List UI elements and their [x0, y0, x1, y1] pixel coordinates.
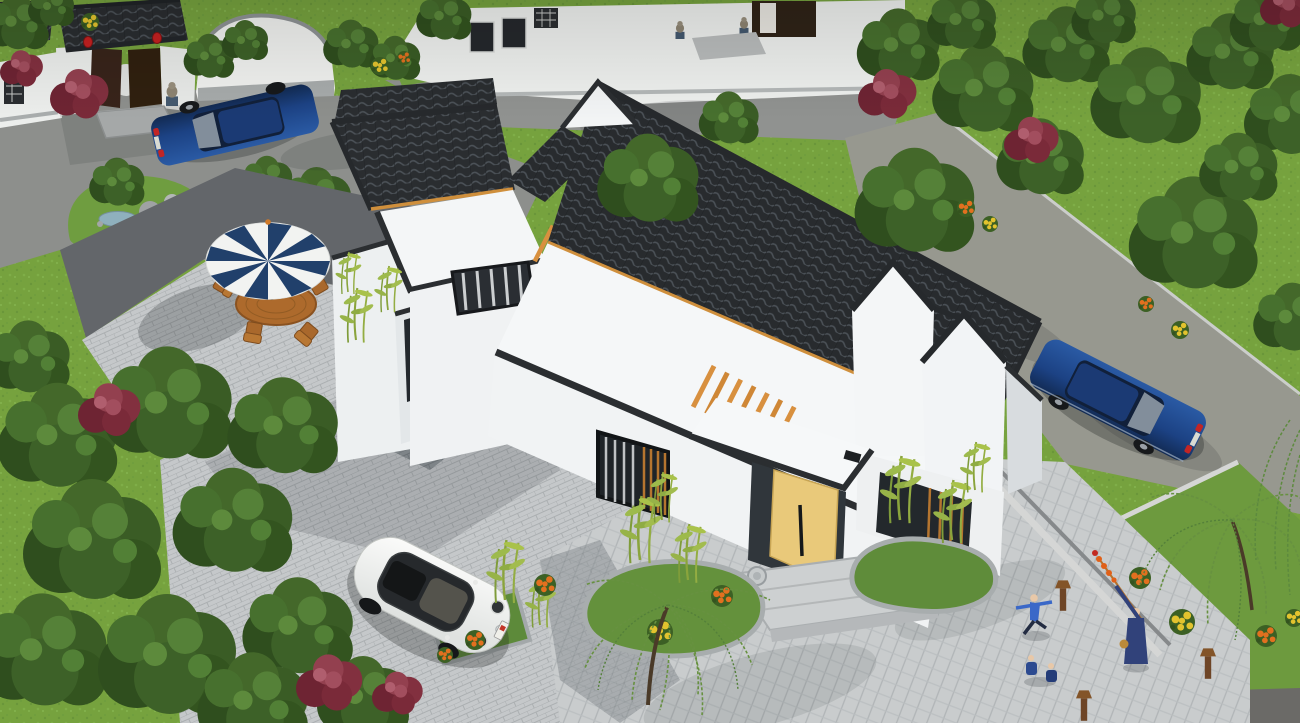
satchel [1120, 640, 1129, 649]
stone-drum-center [753, 572, 761, 580]
bed-right [852, 539, 996, 612]
umbrella-finial [265, 219, 271, 225]
umbrella-canopy [206, 223, 330, 300]
rendering-canvas [0, 0, 1300, 723]
scene-rendering [0, 0, 1300, 723]
rock [97, 221, 103, 227]
door-handle [800, 505, 802, 556]
top-vignette [0, 0, 1300, 120]
